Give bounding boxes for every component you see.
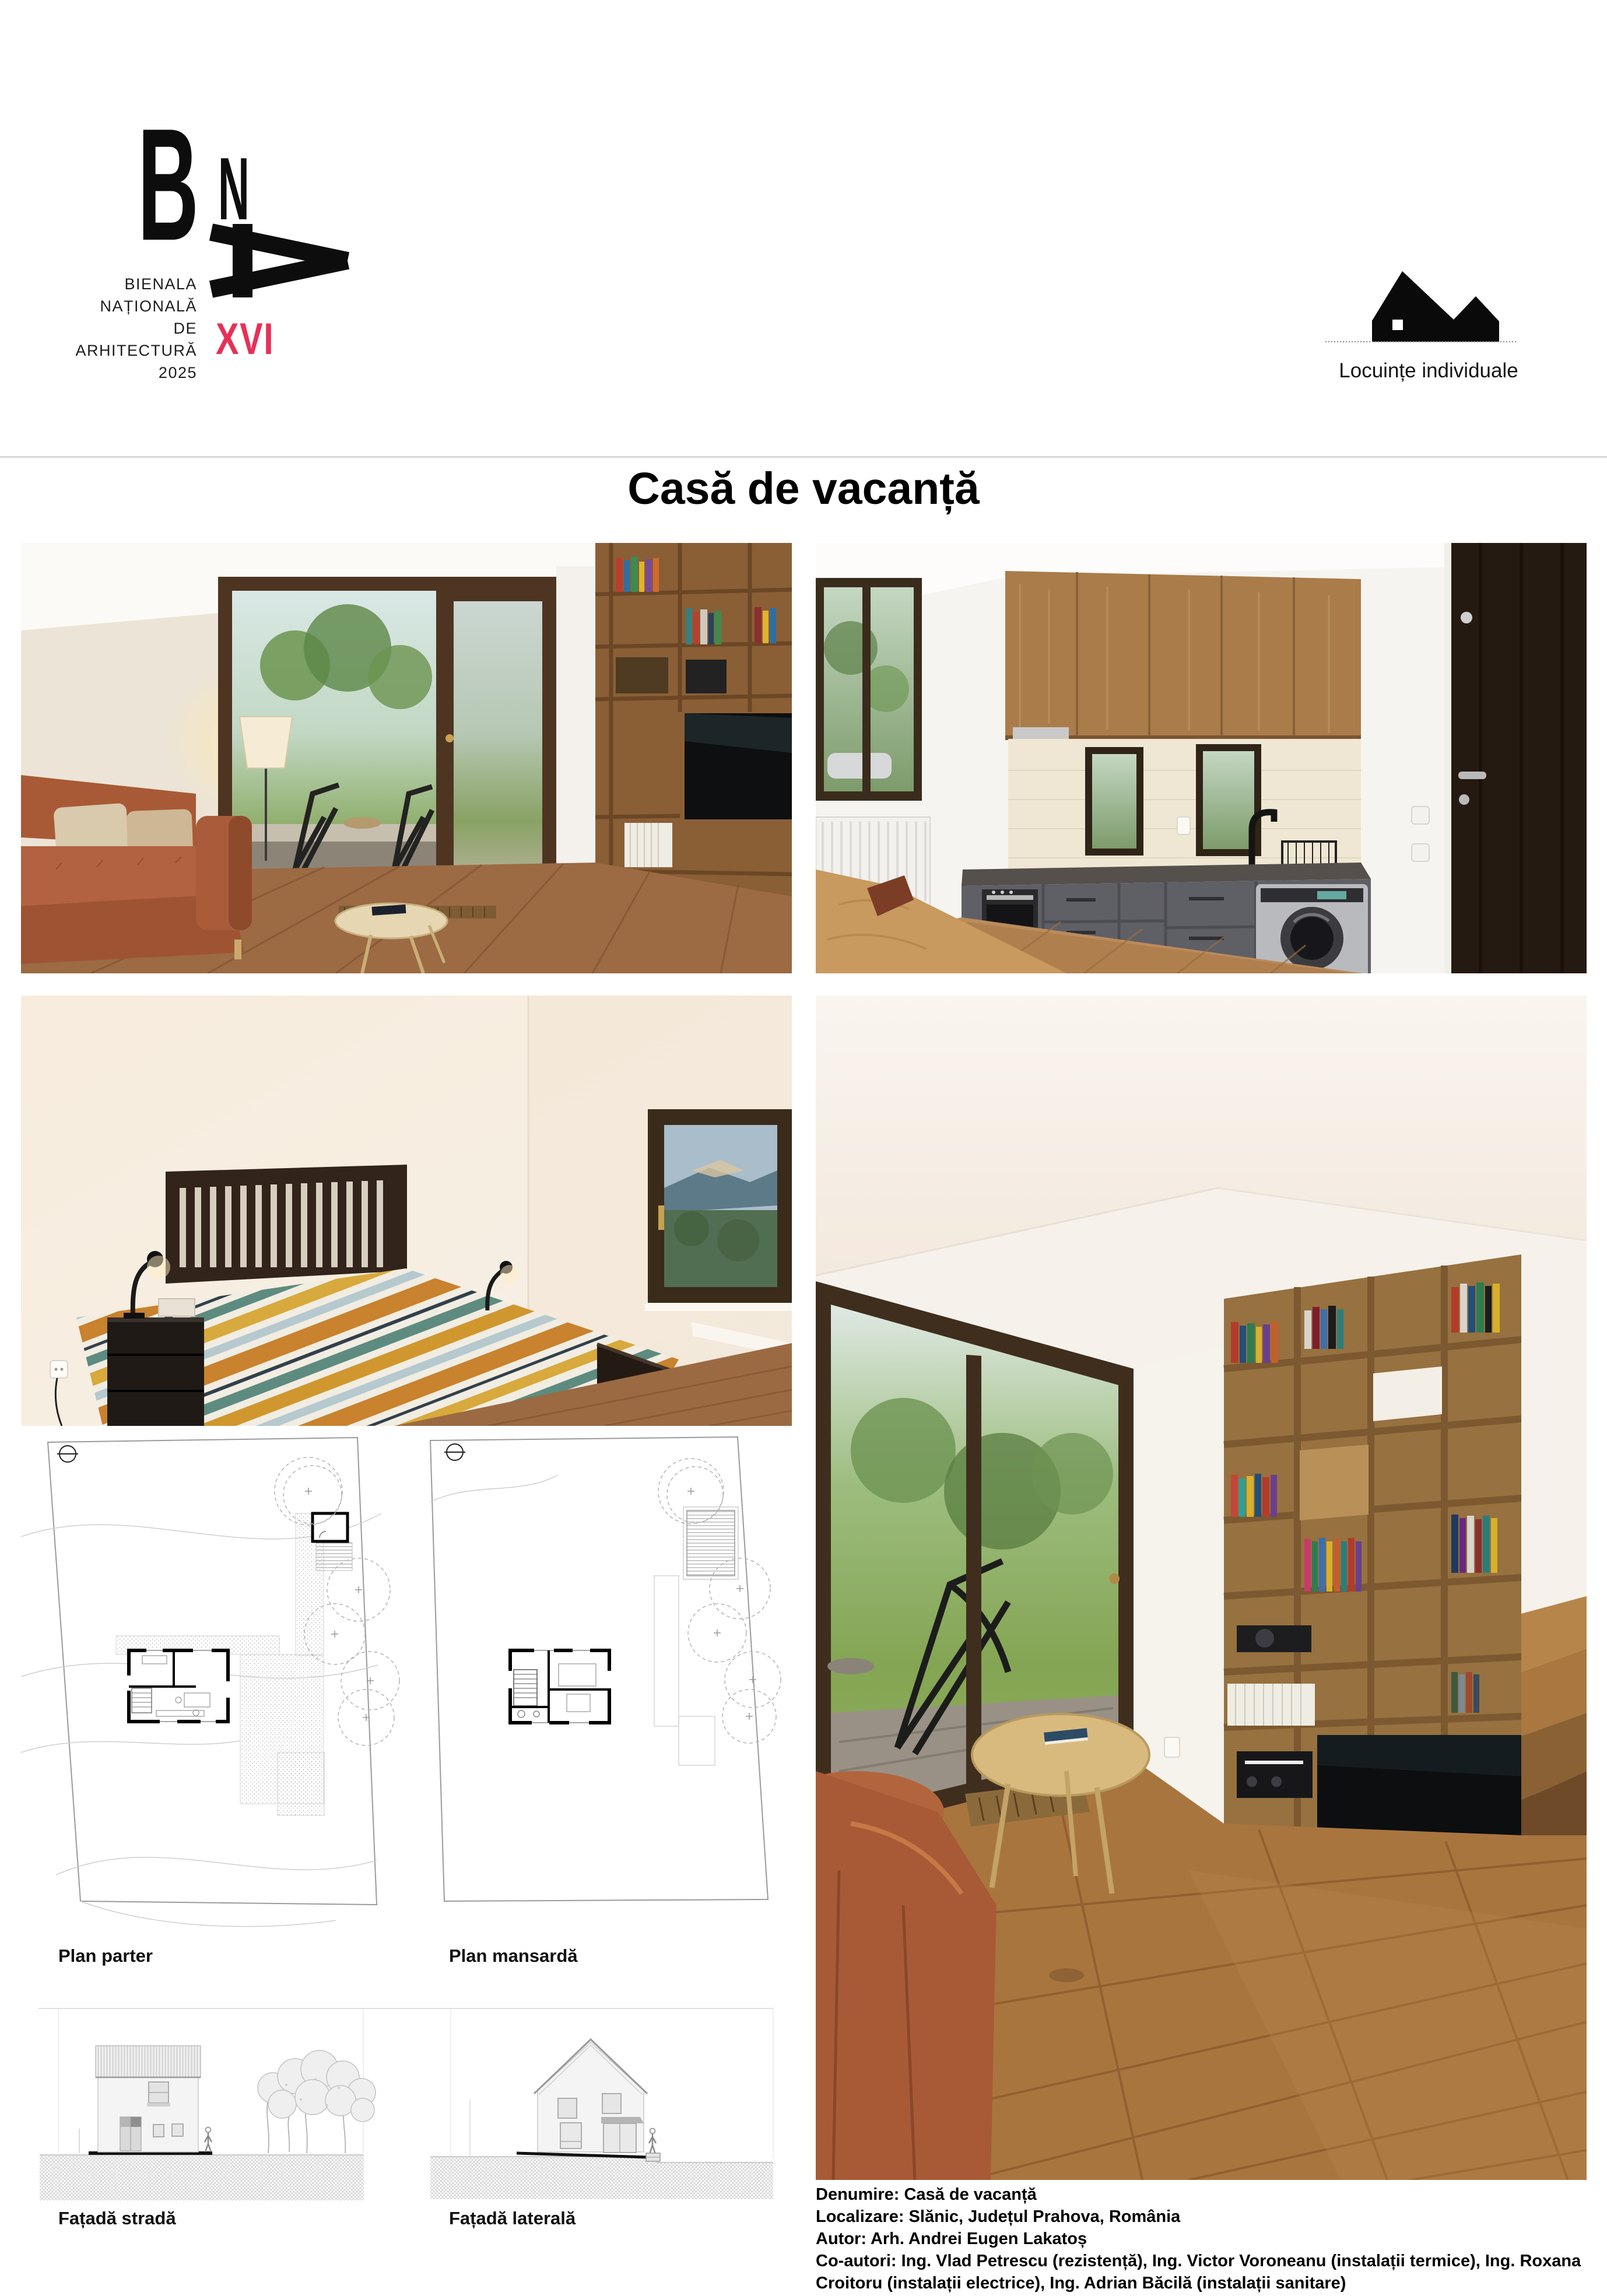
detail-denumire: Denumire: Casă de vacanță xyxy=(816,2183,1602,2206)
logo-caption-line: ARHITECTURĂ xyxy=(75,339,197,362)
category-label: Locuințe individuale xyxy=(1312,359,1545,383)
logo-letter-b: B xyxy=(138,105,199,265)
house-plan xyxy=(127,1647,231,1724)
backsplash xyxy=(1008,739,1361,871)
detail-autor: Autor: Arh. Andrei Eugen Lakatoș xyxy=(816,2228,1602,2250)
side-facade-drawing xyxy=(430,2039,773,2199)
canopy xyxy=(601,2117,644,2123)
mansard-plan xyxy=(508,1647,612,1726)
plan-mansarda-drawing xyxy=(430,1437,781,1901)
trees-drawing xyxy=(258,2050,376,2153)
annex-roof xyxy=(687,1510,735,1576)
facade-drawings xyxy=(21,2006,792,2204)
turntable xyxy=(1237,1625,1311,1652)
bedroom-window xyxy=(645,1109,792,1311)
side-window xyxy=(816,578,922,801)
logo-caption-line: BIENALA xyxy=(75,273,197,295)
plan-parter-drawing xyxy=(21,1438,399,1926)
plan-mansarda-label: Plan mansardă xyxy=(449,1946,578,1967)
separator-line xyxy=(0,456,1607,458)
logo-caption-line: DE xyxy=(75,317,197,339)
person-figure xyxy=(205,2127,212,2153)
project-details: Denumire: Casă de vacanță Localizare: Sl… xyxy=(816,2183,1602,2294)
page-title: Casă de vacanță xyxy=(0,463,1607,515)
street-facade-drawing xyxy=(40,2046,376,2200)
logo-letter-a-icon xyxy=(204,215,356,302)
facade-street-label: Fațadă stradă xyxy=(58,2208,176,2229)
detail-coautori: Co-autori: Ing. Vlad Petrescu (rezistenț… xyxy=(816,2250,1602,2294)
facade-side-label: Fațadă laterală xyxy=(449,2208,576,2229)
biennale-poster-board: B N BIENALA NAȚIONALĂ DE ARHITECTURĂ 202… xyxy=(0,0,1607,2296)
photo-living-room xyxy=(21,543,792,973)
logo-caption: BIENALA NAȚIONALĂ DE ARHITECTURĂ 2025 xyxy=(75,273,197,384)
entrance-door xyxy=(1444,543,1587,973)
wood-steps xyxy=(1521,1596,1587,1835)
photo-living-room-bookshelf xyxy=(816,995,1587,2180)
washing-machine xyxy=(1256,884,1368,973)
person-figure xyxy=(649,2129,656,2155)
individual-housing-icon xyxy=(1322,255,1521,348)
logo-caption-line: 2025 xyxy=(75,362,197,384)
stereo xyxy=(1237,1751,1313,1798)
door-handle xyxy=(1458,772,1486,779)
upper-cabinets xyxy=(1005,571,1361,768)
plan-parter-label: Plan parter xyxy=(58,1946,153,1967)
trees xyxy=(658,1459,781,1743)
logo-edition: XVI xyxy=(216,317,274,362)
photo-bedroom xyxy=(21,995,792,1426)
nightstand xyxy=(107,1299,204,1426)
detail-localizare: Localizare: Slănic, Județul Prahova, Rom… xyxy=(816,2206,1602,2228)
vinyl-records xyxy=(624,823,672,867)
logo-caption-line: NAȚIONALĂ xyxy=(75,295,197,317)
site-plans-drawing xyxy=(21,1426,792,1945)
photo-kitchen xyxy=(816,543,1587,973)
vinyl-records xyxy=(1227,1684,1315,1726)
